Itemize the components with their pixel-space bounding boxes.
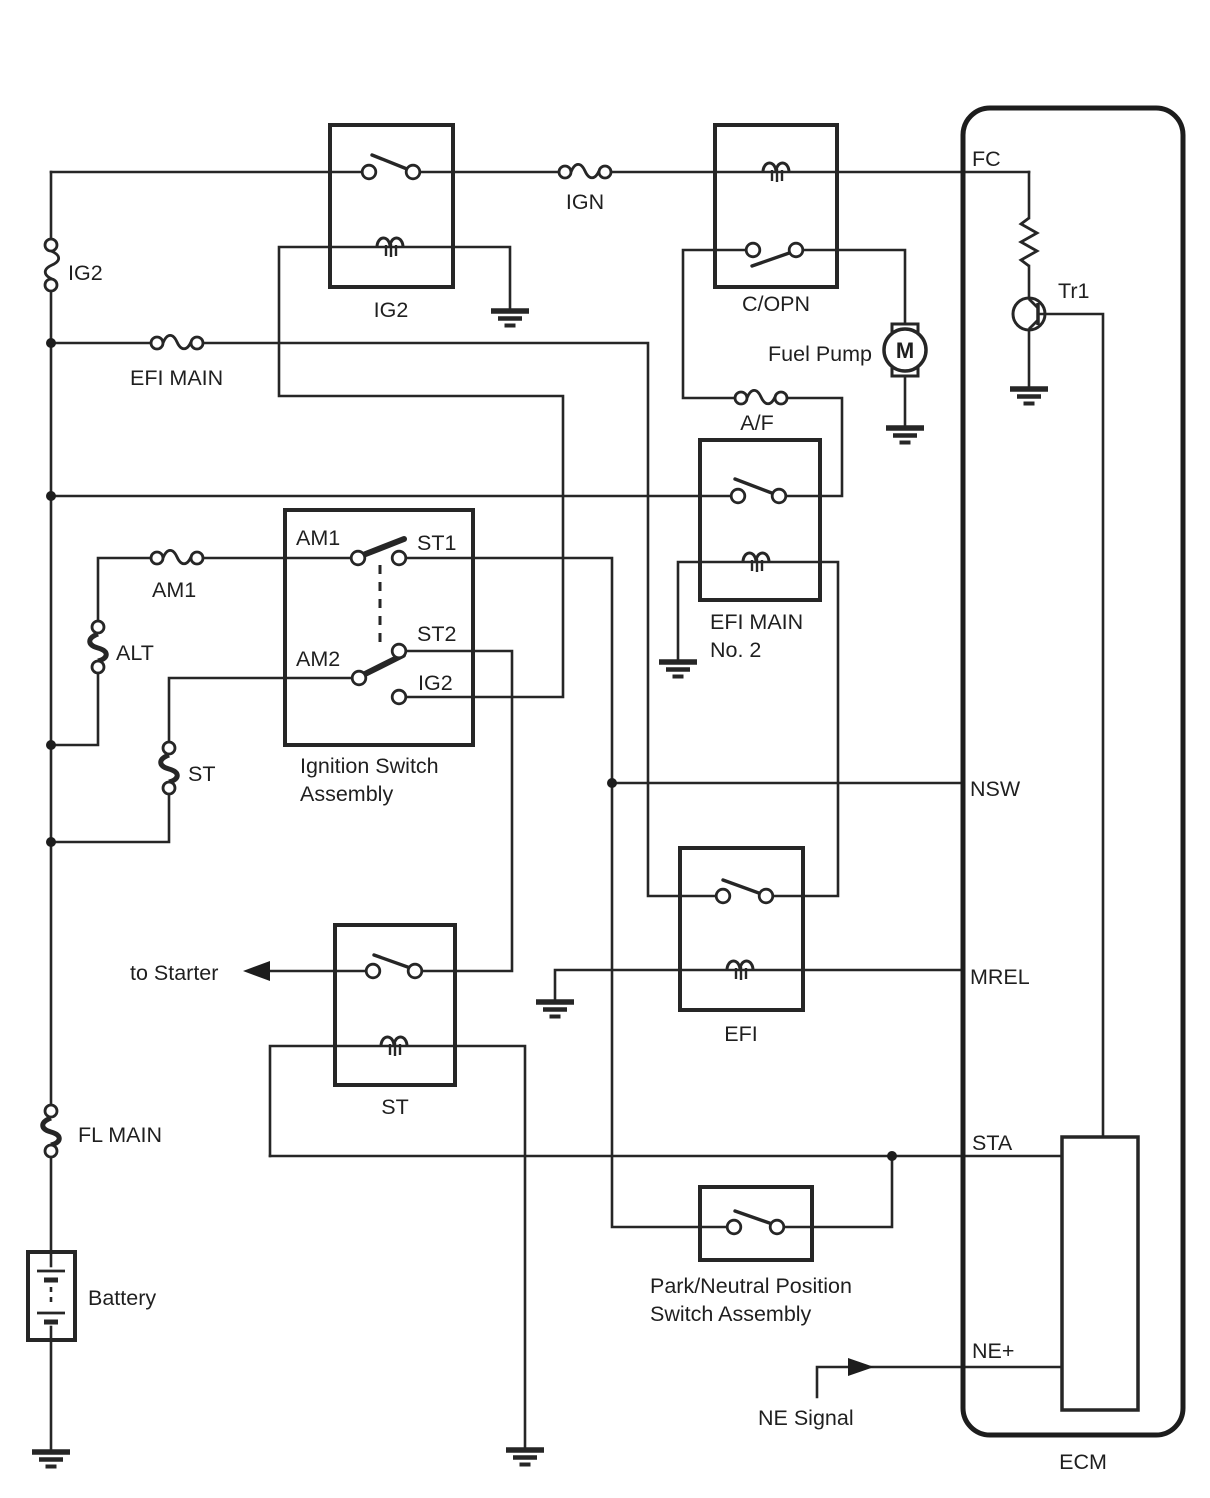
st-relay-box — [335, 925, 455, 1085]
contact — [716, 889, 730, 903]
wire-efi-main-fuse — [51, 343, 716, 896]
fuse-am1-label: AM1 — [152, 578, 196, 602]
junction-dot — [46, 740, 56, 750]
fuse-af-label: A/F — [740, 411, 773, 435]
contact — [789, 243, 803, 257]
fusible-link-icon-alt — [90, 621, 107, 673]
contact — [772, 489, 786, 503]
ne-signal-label: NE Signal — [758, 1406, 854, 1430]
fuse-ig2-label: IG2 — [68, 261, 103, 285]
ig2-relay-box — [330, 125, 453, 287]
ecm-terminal-mrel: MREL — [970, 965, 1030, 989]
terminal-am1-label: AM1 — [296, 526, 340, 550]
ecm-terminal-sta: STA — [972, 1131, 1013, 1155]
contact-am2 — [352, 671, 366, 685]
fuel-pump-motor-icon: M — [884, 324, 926, 376]
ground-icon — [886, 428, 924, 443]
grounds — [32, 311, 1048, 1467]
ne-signal-arrow-icon — [848, 1358, 874, 1376]
efi-main-no2-relay-box — [700, 440, 820, 600]
fuse-icon-ig2 — [45, 239, 59, 291]
fusible-link-icon-st — [161, 742, 178, 794]
link-fl-main-label: FL MAIN — [78, 1123, 162, 1147]
ecm-terminal-ne: NE+ — [972, 1339, 1014, 1363]
wiring — [51, 172, 1103, 1452]
contact-st2 — [392, 644, 406, 658]
wiring-diagram: M IG2 EFI MAIN IG2 IGN C/OPN Fuel Pump A… — [0, 0, 1210, 1498]
wire-mrel — [555, 970, 963, 1002]
ground-icon — [506, 1450, 544, 1465]
contact — [727, 1220, 741, 1234]
ground-icon — [1010, 389, 1048, 404]
relay-efi-label: EFI — [724, 1022, 757, 1046]
fuel-pump-label: Fuel Pump — [768, 342, 872, 366]
terminal-st2-label: ST2 — [417, 622, 456, 646]
ground-icon — [32, 1452, 70, 1467]
pnp-caption-1: Park/Neutral Position — [650, 1274, 852, 1298]
contact — [746, 243, 760, 257]
ignition-caption-1: Ignition Switch — [300, 754, 439, 778]
fuse-icon-af — [735, 390, 787, 404]
ecm-label: ECM — [1059, 1450, 1107, 1474]
relay-no2-label-2: No. 2 — [710, 638, 761, 662]
contact-st1 — [392, 551, 406, 565]
link-alt-label: ALT — [116, 641, 154, 665]
fuse-icon-efi-main — [151, 335, 203, 349]
motor-letter: M — [896, 338, 914, 363]
fusible-link-icon-fl-main — [43, 1105, 60, 1157]
fuse-efi-main-label: EFI MAIN — [130, 366, 223, 390]
contact-am1 — [351, 551, 365, 565]
to-starter-arrow-icon — [243, 961, 270, 981]
fuse-ign-label: IGN — [566, 190, 604, 214]
relay-copn-label: C/OPN — [742, 292, 810, 316]
battery-icon — [28, 1252, 75, 1340]
terminal-am2-label: AM2 — [296, 647, 340, 671]
pnp-caption-2: Switch Assembly — [650, 1302, 812, 1326]
contact-ig2 — [392, 690, 406, 704]
ecm-terminal-fc: FC — [972, 147, 1001, 171]
to-starter-label: to Starter — [130, 961, 218, 985]
labels: IG2 EFI MAIN IG2 IGN C/OPN Fuel Pump A/F… — [68, 147, 1107, 1474]
battery-label: Battery — [88, 1286, 156, 1310]
ignition-caption-2: Assembly — [300, 782, 393, 806]
ground-icon — [491, 311, 529, 326]
wire-pnp-right — [784, 1156, 892, 1227]
contact — [731, 489, 745, 503]
switch-contacts — [351, 165, 803, 1234]
contact — [362, 165, 376, 179]
transistor-tr1-label: Tr1 — [1058, 279, 1089, 303]
contact — [406, 165, 420, 179]
junction-dot — [46, 491, 56, 501]
ground-icon — [536, 1002, 574, 1017]
contact — [759, 889, 773, 903]
terminal-ig2-label: IG2 — [418, 671, 453, 695]
relay-ig2-label: IG2 — [374, 298, 409, 322]
relay-no2-label-1: EFI MAIN — [710, 610, 803, 634]
ecm-terminal-nsw: NSW — [970, 777, 1021, 801]
copn-relay-box — [715, 125, 837, 287]
junction-dot — [887, 1151, 897, 1161]
relay-st-label: ST — [381, 1095, 408, 1119]
contact — [366, 964, 380, 978]
junction-dot — [607, 778, 617, 788]
resistor-icon — [1021, 218, 1037, 266]
terminal-st1-label: ST1 — [417, 531, 456, 555]
contact — [408, 964, 422, 978]
ground-icon — [659, 662, 697, 677]
wire-ecm-fc-internal — [1029, 172, 1103, 1137]
contact — [770, 1220, 784, 1234]
junction-dot — [46, 338, 56, 348]
efi-relay-box — [680, 848, 803, 1010]
pnp-switch-box — [700, 1187, 812, 1260]
junction-dot — [46, 837, 56, 847]
ecm-box — [963, 108, 1183, 1435]
fuse-icon-ign — [559, 164, 611, 178]
fuse-icon-am1 — [151, 550, 203, 564]
link-st-label: ST — [188, 762, 215, 786]
ecm-internal-block — [1062, 1137, 1138, 1410]
